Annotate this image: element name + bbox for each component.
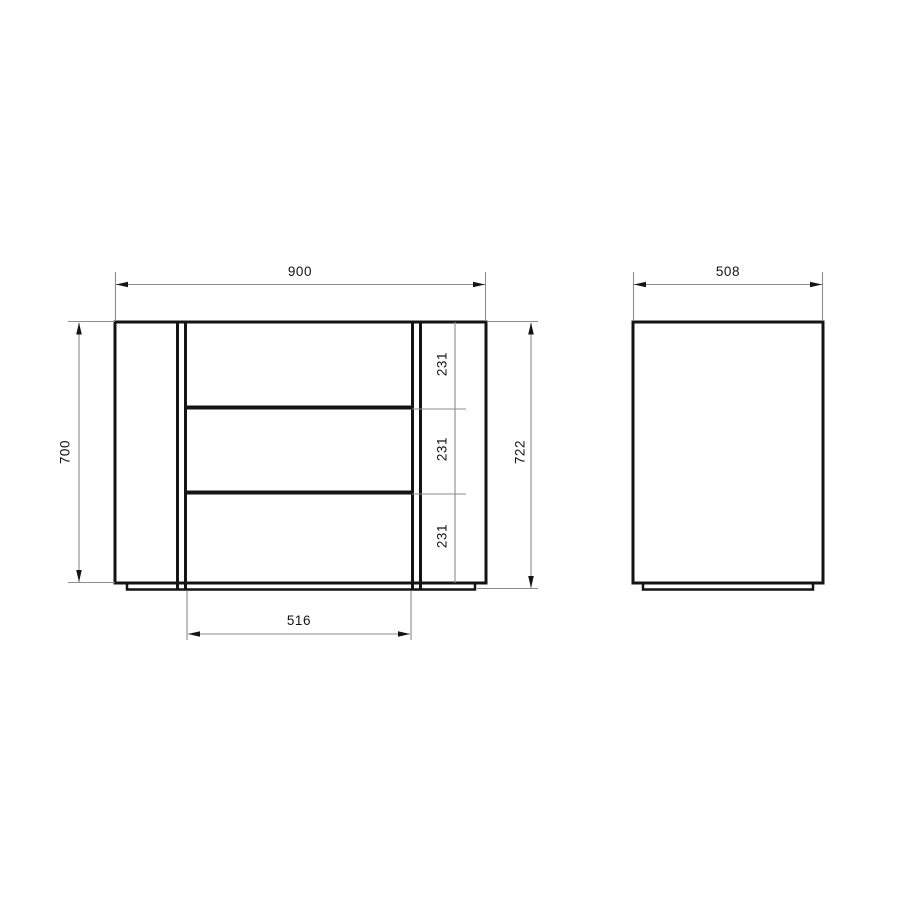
label-drawer-height-2: 231 <box>435 437 450 461</box>
technical-drawing: 900 508 700 722 516 231 231 231 <box>0 0 900 900</box>
label-total-height: 722 <box>513 440 528 464</box>
label-inner-width: 516 <box>287 613 311 628</box>
arrow-side-depth-left-icon <box>634 282 646 288</box>
label-front-width: 900 <box>288 264 312 279</box>
arrow-body-height-bottom-icon <box>76 570 82 582</box>
label-side-depth: 508 <box>716 264 740 279</box>
arrow-side-depth-right-icon <box>810 282 822 288</box>
front-body-outline <box>115 322 486 583</box>
front-drawer-dividers <box>187 408 411 493</box>
arrow-inner-width-left-icon <box>188 631 200 637</box>
front-view <box>115 322 486 590</box>
label-body-height: 700 <box>58 440 73 464</box>
arrow-total-height-bottom-icon <box>528 576 534 588</box>
arrow-body-height-top-icon <box>76 323 82 335</box>
arrow-total-height-top-icon <box>528 323 534 335</box>
label-drawer-height-1: 231 <box>435 352 450 376</box>
arrow-inner-width-right-icon <box>398 631 410 637</box>
side-body-outline <box>633 322 823 583</box>
label-drawer-height-3: 231 <box>435 524 450 548</box>
arrow-front-width-right-icon <box>473 282 485 288</box>
drawing-canvas: 900 508 700 722 516 231 231 231 <box>0 0 900 900</box>
dimension-labels: 900 508 700 722 516 231 231 231 <box>58 264 741 628</box>
side-view <box>633 322 823 583</box>
arrow-front-width-left-icon <box>116 282 128 288</box>
